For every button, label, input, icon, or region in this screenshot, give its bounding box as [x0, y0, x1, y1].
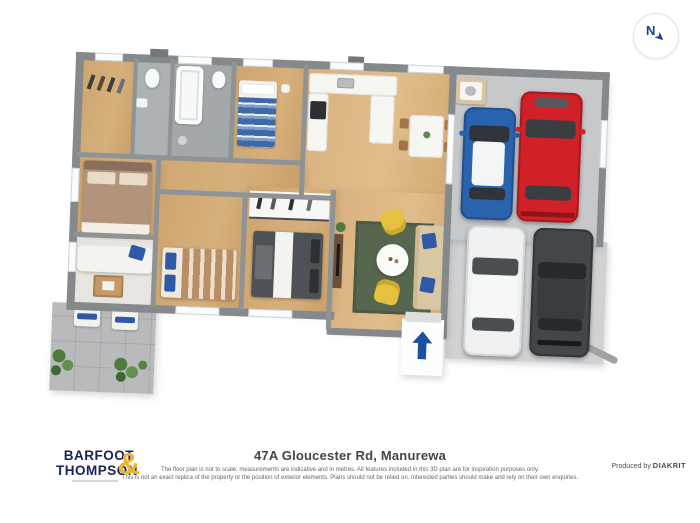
producer-credit: Produced by DIAKRIT [612, 461, 686, 470]
logo-ampersand: & [118, 449, 140, 479]
wardrobe-clothes [87, 72, 132, 94]
laundry-tub [456, 77, 487, 104]
window-kitchen [330, 62, 364, 71]
sun-lounger-2 [112, 309, 139, 330]
patio-floor [49, 302, 156, 394]
kitchen-counter-right [369, 95, 395, 144]
bathtub [175, 66, 204, 125]
lounge-sofa [77, 239, 154, 274]
bedroom4-bed [161, 247, 237, 300]
entry-step [405, 312, 441, 323]
agency-logo: BARFOOT THOMPSON & [56, 448, 148, 490]
window-dining [408, 65, 444, 74]
disclaimer-text: The floor plan is not to scale: measurem… [70, 467, 630, 482]
window-wardrobe [95, 53, 123, 62]
logo-tagline-rule [72, 480, 118, 482]
property-address: 47A Gloucester Rd, Manurewa [130, 448, 570, 463]
window-bathroom [178, 56, 212, 65]
dining-chair-2 [399, 140, 408, 150]
window-bedroom4 [175, 306, 219, 316]
cooktop [310, 101, 327, 120]
dining-chair-1 [400, 118, 409, 128]
blue-car [460, 107, 516, 221]
window-bedroom2 [243, 58, 273, 67]
bedroom2-bed [237, 80, 278, 147]
window-garage [599, 120, 608, 168]
kitchen-sink [337, 78, 354, 89]
dark-car [529, 228, 594, 358]
lounge-coffee-table [93, 275, 124, 298]
compass: N ➤ [633, 13, 679, 59]
bedroom3-bed [251, 231, 323, 300]
window-lounge [68, 242, 77, 272]
bedroom2-nightstand [281, 84, 290, 93]
white-car [463, 225, 526, 357]
producer-name: DIAKRIT [653, 461, 686, 470]
produced-by-label: Produced by [612, 463, 651, 470]
window-bedroom3 [248, 309, 292, 319]
master-bed [81, 160, 152, 237]
floor-plan-scene [0, 0, 700, 523]
window-master [70, 168, 79, 202]
red-car [516, 91, 583, 223]
disclaimer-line-1: The floor plan is not to scale: measurem… [70, 467, 630, 475]
basin-wc [136, 98, 147, 107]
disclaimer-line-2: This is not an exact replica of the prop… [70, 475, 630, 483]
wall-stub-1 [150, 49, 168, 58]
